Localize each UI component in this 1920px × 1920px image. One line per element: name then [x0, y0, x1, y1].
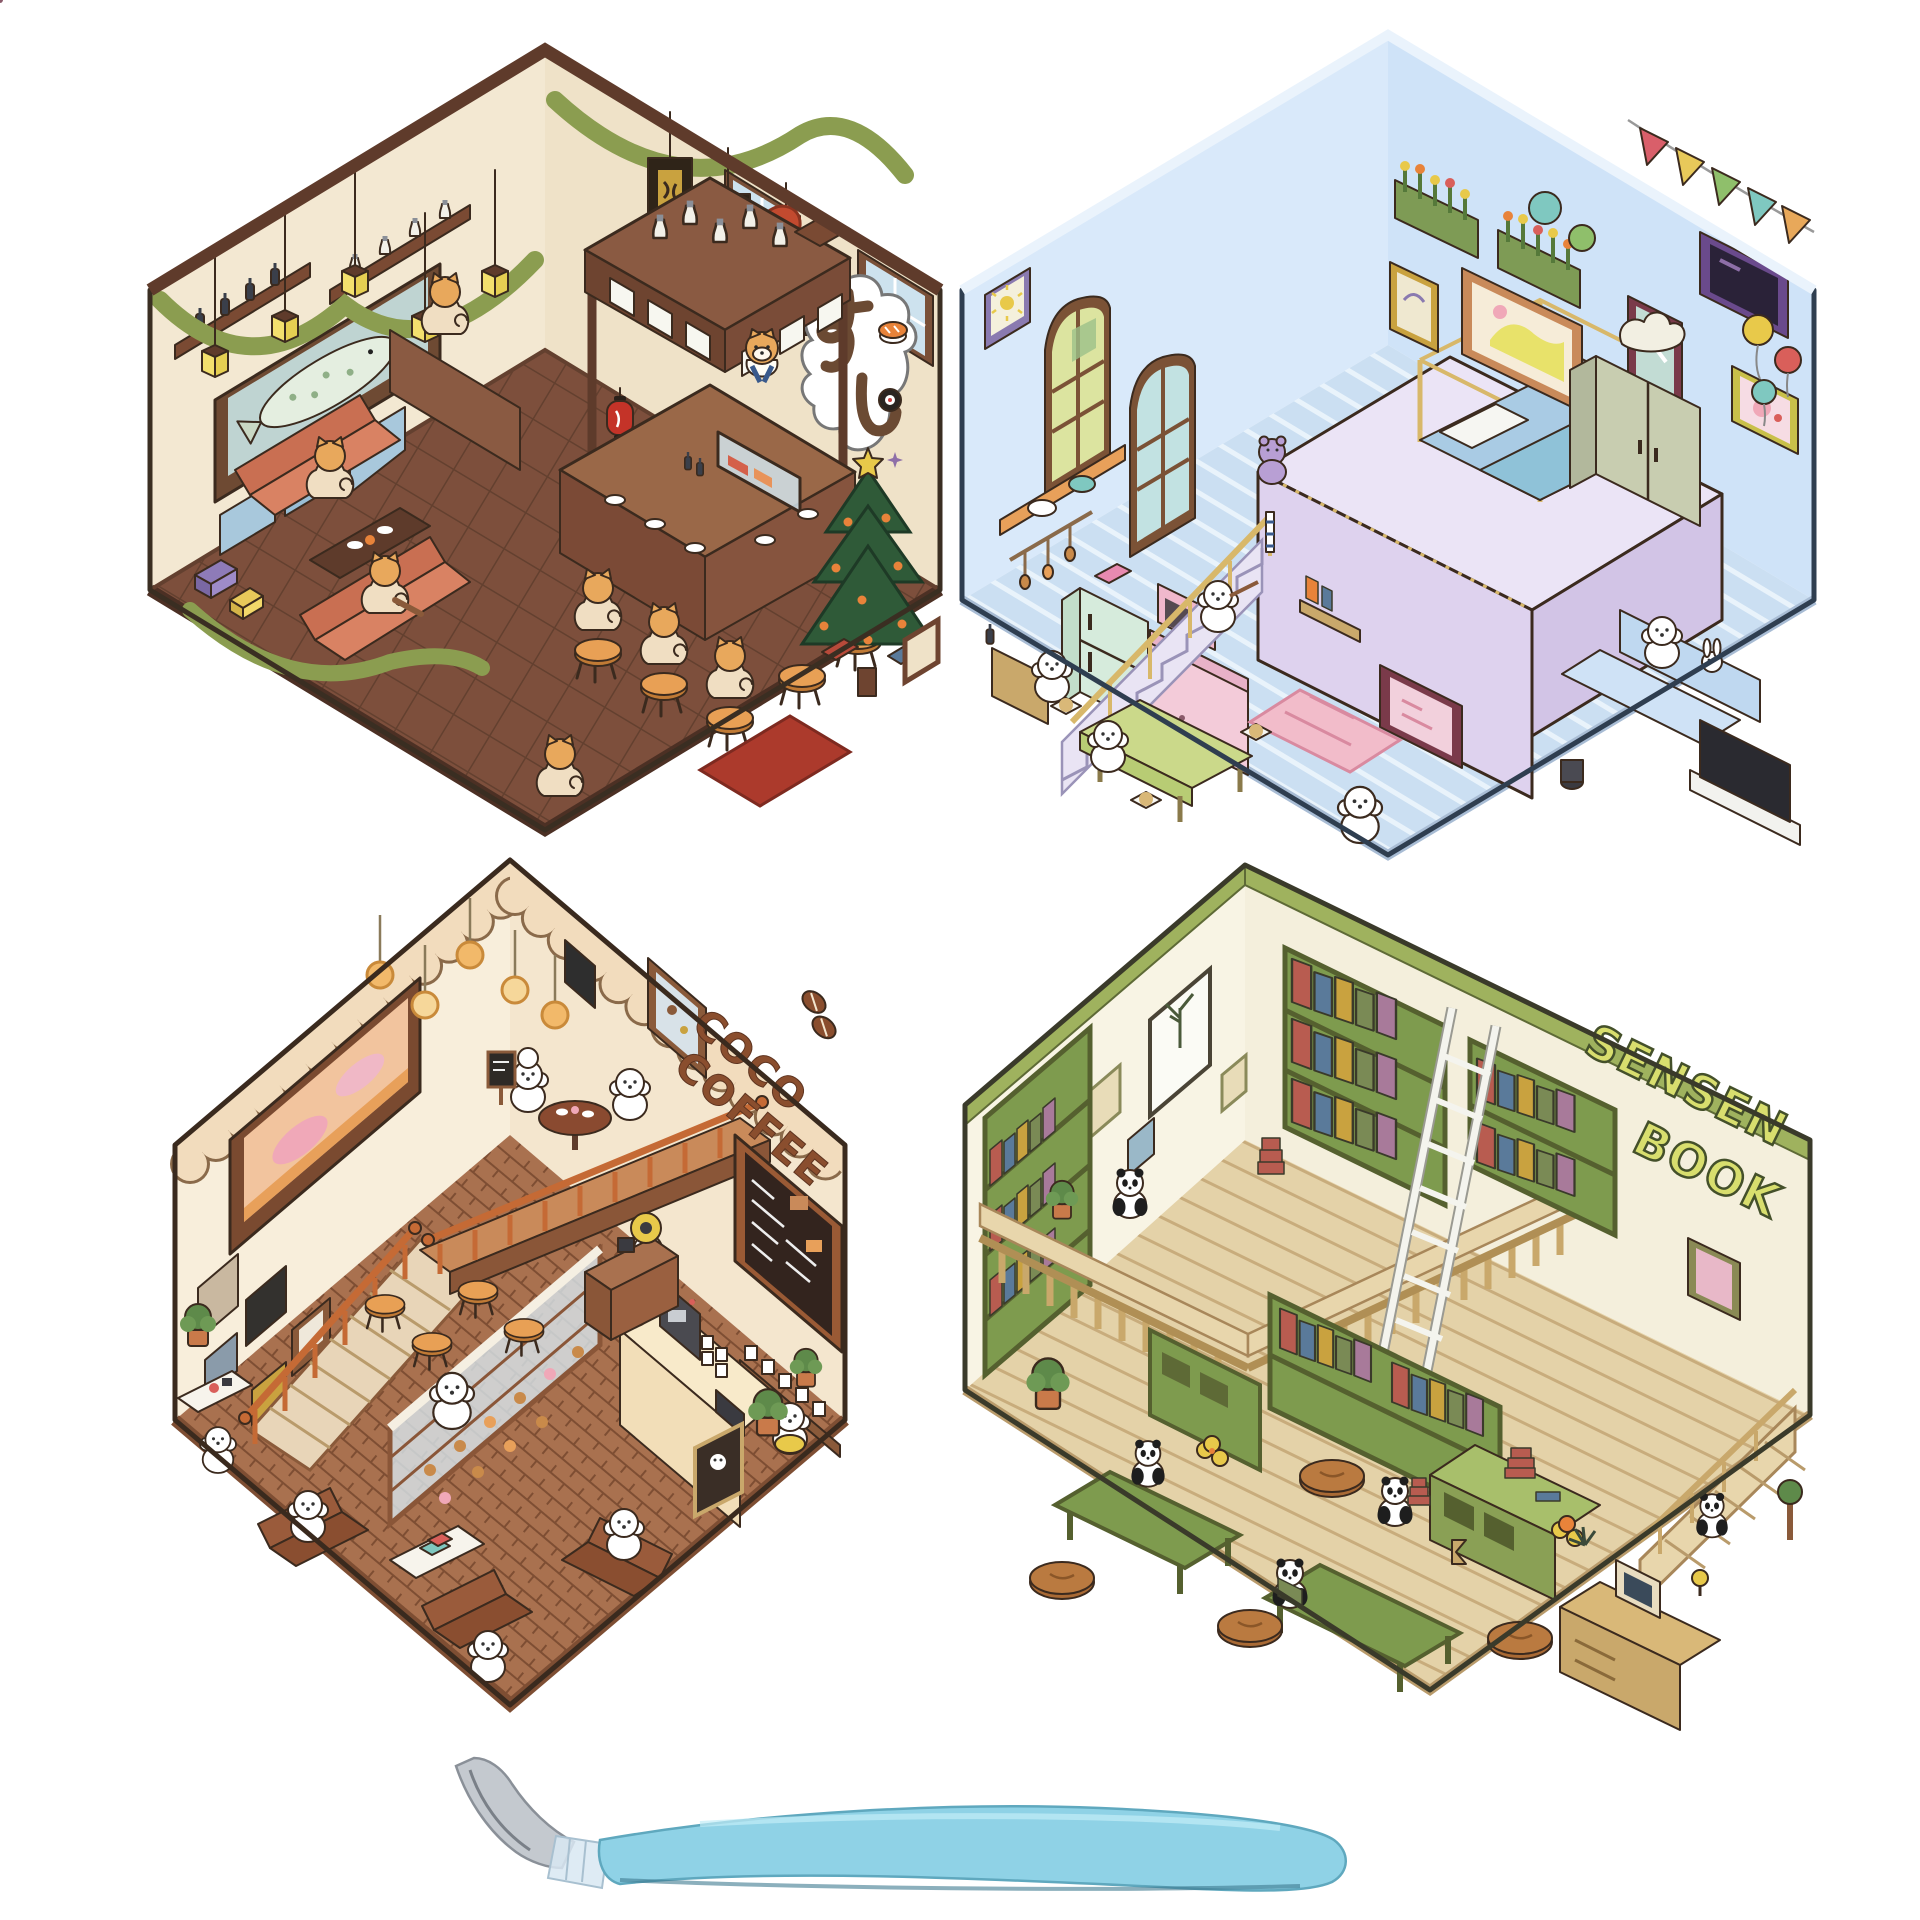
tweezers-tool — [456, 1758, 1346, 1890]
scene-coffee-shop: COCO COFFEE — [175, 860, 848, 1705]
product-image: COCO COFFEE — [0, 0, 1920, 1920]
scene-bookstore: SENSEN BOOK — [965, 865, 1810, 1730]
miniature-rooms-illustration: COCO COFFEE — [0, 0, 1920, 1920]
scene-sushi-restaurant — [150, 50, 940, 830]
chef-shiba — [746, 329, 778, 382]
coffee-bean-icon — [790, 987, 848, 1043]
teddy-bear — [1258, 437, 1286, 485]
